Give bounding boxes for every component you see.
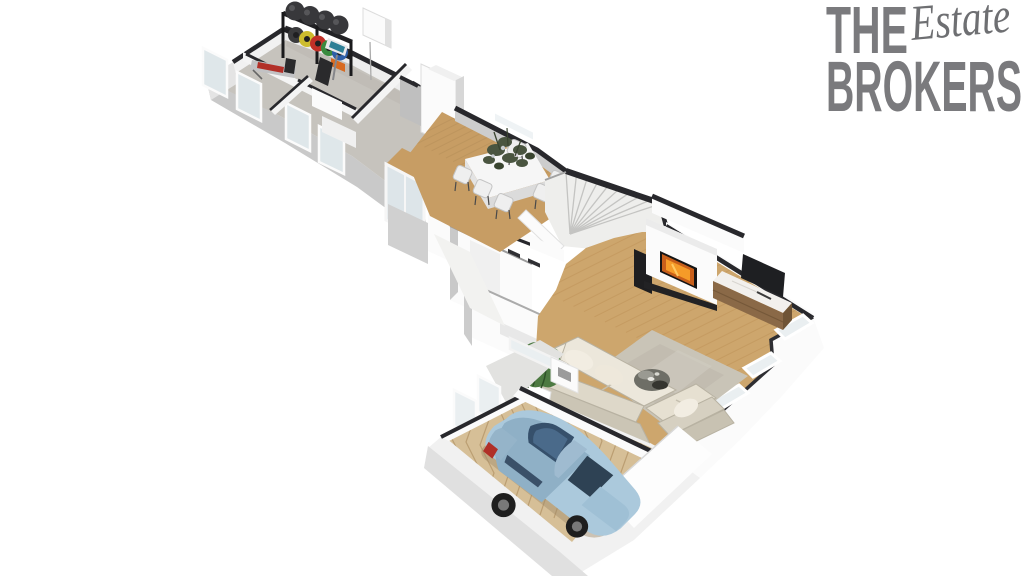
svg-text:BROKERS: BROKERS: [826, 48, 1022, 127]
svg-text:Estate: Estate: [907, 0, 1012, 51]
